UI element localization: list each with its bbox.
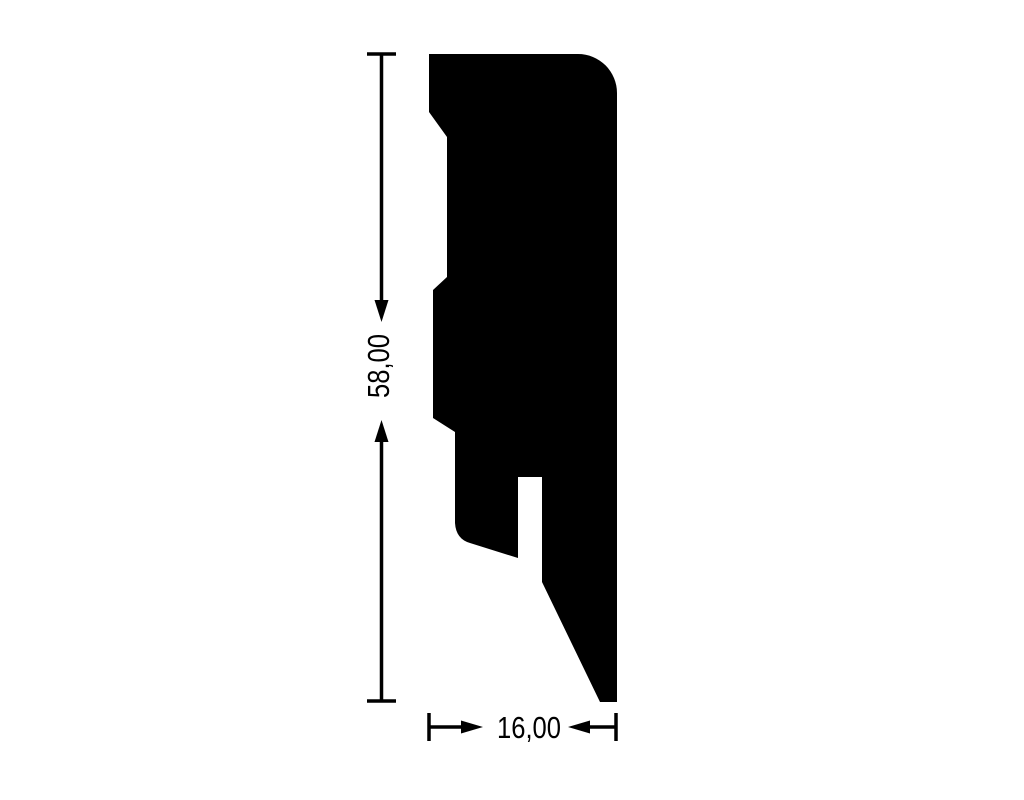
width-dim-label: 16,00 <box>497 710 561 745</box>
height-dim-arrowhead-down-icon <box>375 300 389 322</box>
height-dim-label: 58,00 <box>361 334 396 398</box>
height-dim-arrowhead-up-icon <box>375 420 389 442</box>
width-dim-arrowhead-right-icon <box>461 721 483 734</box>
profile-silhouette <box>429 54 617 702</box>
drawing-canvas: 58,00 16,00 <box>0 0 1024 800</box>
width-dimension: 16,00 <box>429 710 616 745</box>
height-dimension: 58,00 <box>361 54 396 701</box>
profile-drawing: 58,00 16,00 <box>0 0 1024 800</box>
width-dim-arrowhead-left-icon <box>568 721 590 734</box>
